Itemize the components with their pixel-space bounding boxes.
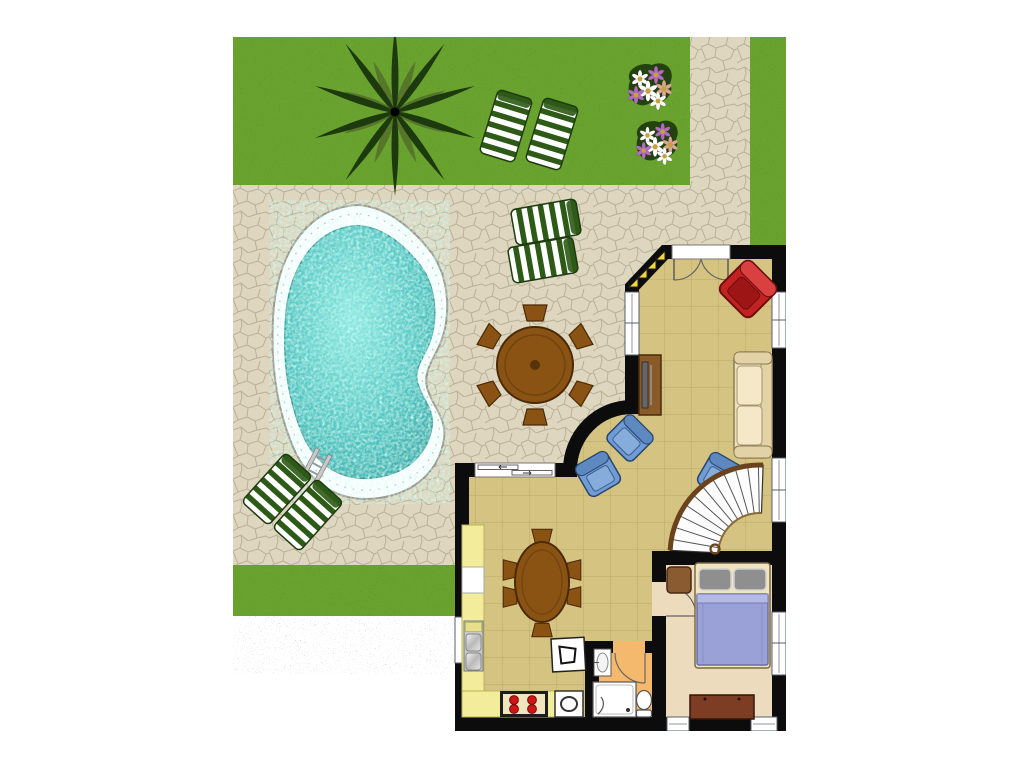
dresser: [690, 695, 754, 719]
window: [772, 458, 786, 522]
floor-plan-page: [0, 0, 1024, 768]
pillow: [699, 569, 731, 590]
blanket: [697, 594, 768, 665]
oven: [555, 691, 583, 717]
window: [772, 612, 786, 675]
window: [751, 717, 777, 731]
grass-area-right: [750, 37, 786, 250]
counter-cabinet: [462, 567, 484, 593]
stove: [500, 691, 548, 717]
umbrella-hole: [530, 360, 540, 370]
tv: [642, 362, 648, 408]
kitchen-sink: [464, 621, 483, 671]
tv-cabinet: [639, 355, 661, 415]
dining-table: [515, 542, 569, 622]
nightstand: [667, 567, 691, 593]
patio-chair: [523, 305, 547, 321]
window: [772, 292, 786, 348]
pillow: [734, 569, 766, 590]
palm-trunk: [391, 108, 400, 117]
bathroom-top-wall: [645, 641, 652, 653]
bathroom-sink: [594, 649, 611, 676]
sofa: [734, 352, 772, 458]
small-appliance: [551, 637, 586, 672]
patio-chair: [523, 409, 547, 425]
floor-plan: [233, 37, 786, 731]
toilet: [637, 691, 652, 718]
dining-chair: [532, 529, 552, 543]
grass-area-top: [233, 37, 690, 185]
dining-chair: [532, 623, 552, 637]
stone-path: [690, 37, 750, 250]
window: [667, 717, 689, 731]
window: [625, 292, 639, 355]
shower: [593, 682, 636, 717]
swimming-pool: [273, 205, 448, 499]
pool-water: [285, 226, 435, 479]
sliding-door: [475, 463, 555, 477]
bedroom-left-wall: [652, 565, 666, 582]
double-bed: [695, 563, 770, 668]
bedroom-left-wall: [652, 616, 666, 724]
grass-area-bottom: [233, 565, 455, 616]
